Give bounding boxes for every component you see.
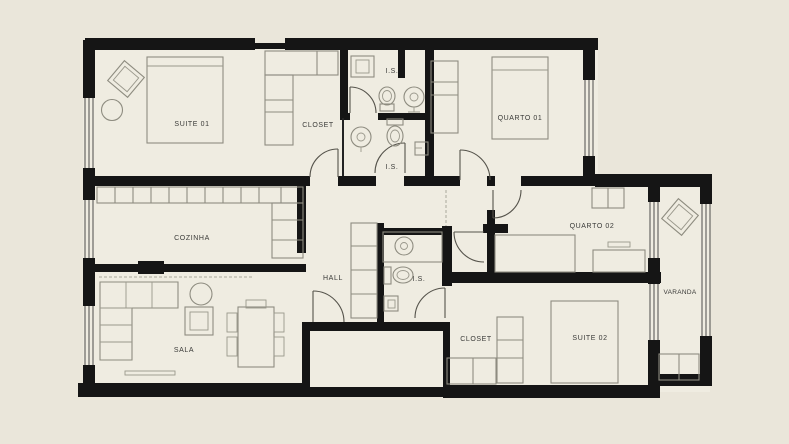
floor-layer [85,44,710,392]
window-suite01 [83,98,95,168]
floor-plan-canvas: SUITE 01 CLOSET I.S. QUARTO 01 COZINHA I… [0,0,789,444]
room-label-suite02: SUITE 02 [572,335,607,342]
room-label-hall: HALL [323,275,343,282]
room-label-is-mid: I.S. [386,164,399,171]
room-label-cozinha: COZINHA [174,235,210,242]
room-label-closet02: CLOSET [460,336,492,343]
room-label-sala: SALA [174,347,194,354]
room-label-is-top: I.S. [386,68,399,75]
floor-plan-svg: SUITE 01 CLOSET I.S. QUARTO 01 COZINHA I… [0,0,789,444]
window-cozinha [83,200,95,258]
room-label-is-service: I.S. [413,276,426,283]
room-label-varanda: VARANDA [663,289,696,296]
window-quarto01 [583,80,595,156]
window-sala [83,306,95,365]
room-label-quarto02: QUARTO 02 [570,223,615,230]
room-label-quarto01: QUARTO 01 [498,115,543,122]
room-label-suite01: SUITE 01 [174,121,209,128]
room-label-closet01: CLOSET [302,122,334,129]
